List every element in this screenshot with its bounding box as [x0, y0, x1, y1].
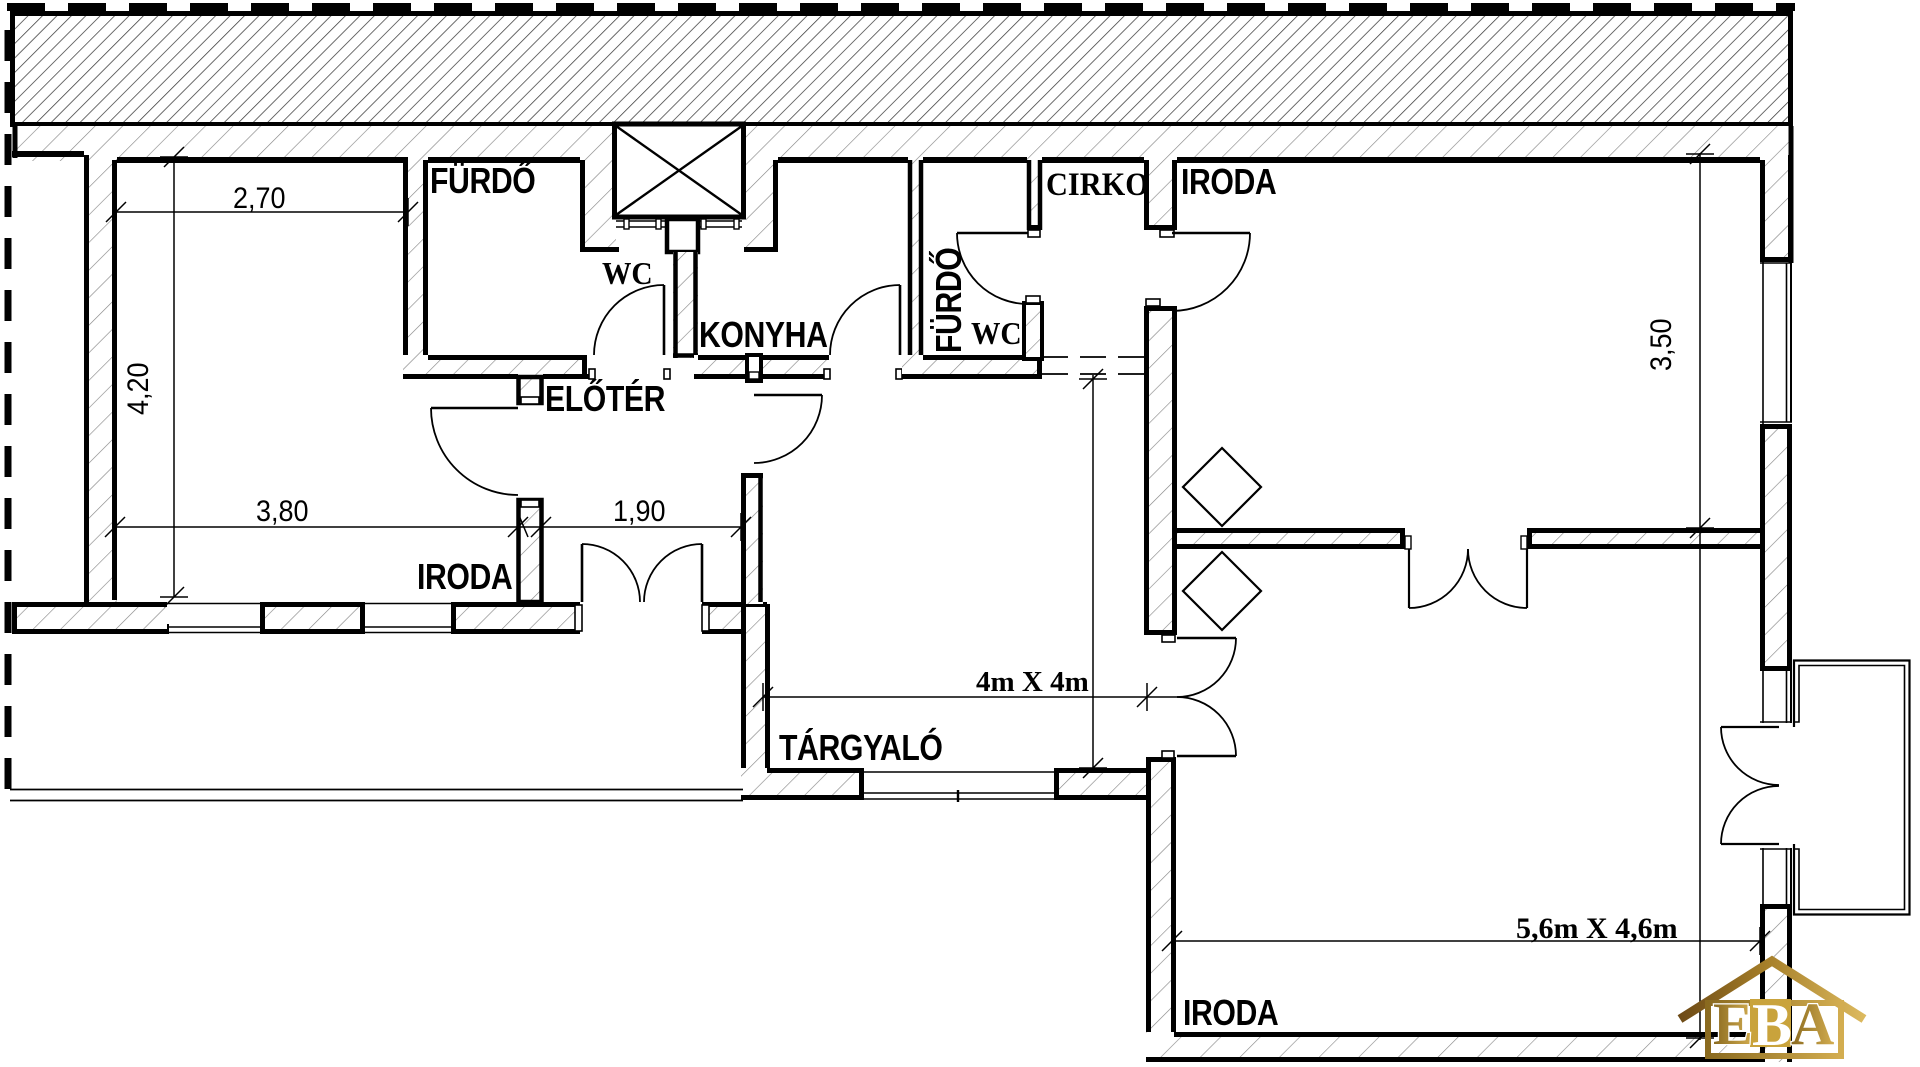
svg-text:WC: WC — [602, 256, 653, 291]
svg-text:1,90: 1,90 — [613, 495, 666, 529]
svg-text:3,80: 3,80 — [256, 495, 309, 529]
svg-text:IRODA: IRODA — [1183, 994, 1279, 1034]
svg-text:ELŐTÉR: ELŐTÉR — [545, 379, 666, 420]
svg-text:FÜRDŐ: FÜRDŐ — [430, 161, 535, 202]
svg-text:IRODA: IRODA — [1181, 163, 1277, 203]
svg-text:CIRKO: CIRKO — [1046, 166, 1149, 202]
svg-text:FÜRDŐ: FÜRDŐ — [929, 248, 970, 353]
svg-text:4m X 4m: 4m X 4m — [976, 666, 1089, 698]
svg-text:TÁRGYALÓ: TÁRGYALÓ — [779, 728, 942, 769]
svg-text:2,70: 2,70 — [233, 182, 286, 216]
svg-text:E: E — [1713, 991, 1753, 1057]
svg-text:B: B — [1752, 992, 1792, 1058]
svg-text:4,20: 4,20 — [122, 362, 156, 415]
svg-text:3,50: 3,50 — [1645, 318, 1679, 371]
svg-text:KONYHA: KONYHA — [699, 316, 828, 356]
svg-text:A: A — [1791, 991, 1834, 1057]
svg-text:5,6m X 4,6m: 5,6m X 4,6m — [1516, 912, 1678, 945]
svg-text:WC: WC — [971, 316, 1022, 351]
svg-text:IRODA: IRODA — [417, 558, 513, 598]
